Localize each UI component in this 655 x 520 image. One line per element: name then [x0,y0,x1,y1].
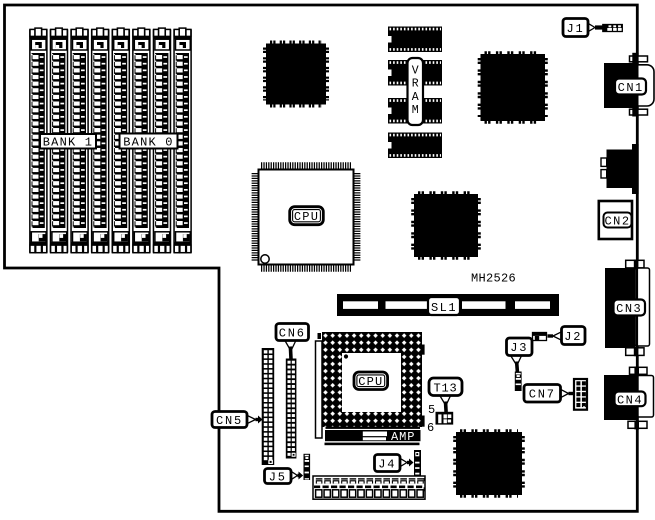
svg-text:V: V [412,65,419,78]
svg-text:BANK 0: BANK 0 [123,136,173,150]
svg-text:J2: J2 [564,330,582,344]
svg-text:5: 5 [428,403,435,417]
svg-text:CN7: CN7 [529,388,556,402]
svg-text:CN4: CN4 [617,394,643,408]
svg-text:SL1: SL1 [431,301,457,315]
svg-text:A: A [412,91,419,104]
svg-text:CN5: CN5 [216,414,243,428]
svg-text:J5: J5 [269,470,287,484]
svg-text:R: R [412,78,419,91]
svg-text:CN6: CN6 [279,326,306,340]
svg-text:T13: T13 [433,381,457,395]
svg-text:CN3: CN3 [616,302,642,316]
svg-text:MH2526: MH2526 [471,272,516,286]
svg-text:CN1: CN1 [618,81,644,95]
svg-text:AMP: AMP [391,430,415,444]
svg-text:J4: J4 [378,457,396,471]
svg-text:M: M [412,104,419,117]
svg-text:CN2: CN2 [604,215,630,229]
svg-text:CPU: CPU [358,375,383,389]
svg-text:6: 6 [427,421,434,435]
svg-text:J3: J3 [510,341,528,355]
svg-text:J1: J1 [566,22,584,36]
svg-text:CPU: CPU [294,210,319,224]
svg-text:BANK 1: BANK 1 [43,136,93,150]
